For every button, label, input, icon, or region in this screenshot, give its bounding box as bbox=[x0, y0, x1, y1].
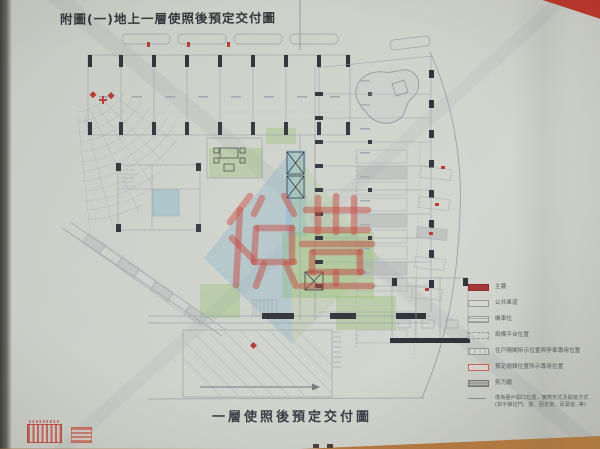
legend-item-label: 剪力牆 bbox=[495, 380, 512, 387]
legend-swatch-main-wall bbox=[468, 284, 489, 291]
legend-swatch-scooter-space bbox=[468, 316, 489, 323]
legend-item-label: 住戶隔間所示位置與停車專用位置 bbox=[495, 348, 581, 355]
legend-swatch-opening-line bbox=[468, 395, 489, 402]
legend-item: 設備平台位置 bbox=[468, 332, 596, 339]
legend-item: 主牆 bbox=[468, 284, 596, 291]
red-seal-stamp-small bbox=[71, 427, 92, 443]
top-balconies bbox=[122, 34, 430, 50]
legend-swatch-equipment-platform bbox=[468, 332, 489, 339]
page-title: 附圖(一)地上一層使照後預定交付圖 bbox=[60, 7, 276, 28]
scan-edge-shadow bbox=[0, 0, 12, 449]
legend-swatch-meter-location bbox=[468, 364, 489, 371]
left-parking-stalls bbox=[62, 222, 226, 336]
red-seal-stamp-large bbox=[27, 424, 62, 443]
legend-item: 預定總錶位置所示專用位置 bbox=[468, 364, 596, 371]
legend-item-label: 設備平台位置 bbox=[495, 332, 529, 339]
pond bbox=[356, 70, 419, 124]
legend-note-label: 僅為圈戶開口位置，實際形式及開窗方式(如平推拉門、窗、固定窗、百葉窗..等) bbox=[495, 395, 592, 409]
legend-item-label: 公共車道 bbox=[495, 300, 518, 307]
scan-edge-debris bbox=[313, 444, 339, 449]
legend: 主牆 公共車道 機車位 設備平台位置 住戶隔間所示位置與停車專用位置 預定總錶位… bbox=[468, 284, 596, 409]
legend-item-label: 機車位 bbox=[495, 316, 512, 323]
legend-item: 剪力牆 bbox=[468, 380, 596, 387]
legend-item: 機車位 bbox=[468, 316, 596, 323]
legend-swatch-public-driveway bbox=[468, 300, 489, 307]
unit-labels bbox=[99, 96, 340, 98]
legend-note: 僅為圈戶開口位置，實際形式及開窗方式(如平推拉門、窗、固定窗、百葉窗..等) bbox=[468, 395, 596, 409]
legend-item-label: 主牆 bbox=[495, 284, 506, 291]
legend-item-label: 預定總錶位置所示專用位置 bbox=[495, 364, 563, 371]
legend-swatch-partition-parking bbox=[468, 348, 489, 355]
legend-item: 公共車道 bbox=[468, 300, 596, 307]
top-units-walls bbox=[88, 55, 350, 135]
legend-swatch-shear-wall bbox=[468, 380, 489, 387]
legend-item: 住戶隔間所示位置與停車專用位置 bbox=[468, 348, 596, 355]
drawing-caption: 一層使照後預定交付圖 bbox=[212, 406, 372, 425]
balcony-markers bbox=[147, 42, 230, 47]
